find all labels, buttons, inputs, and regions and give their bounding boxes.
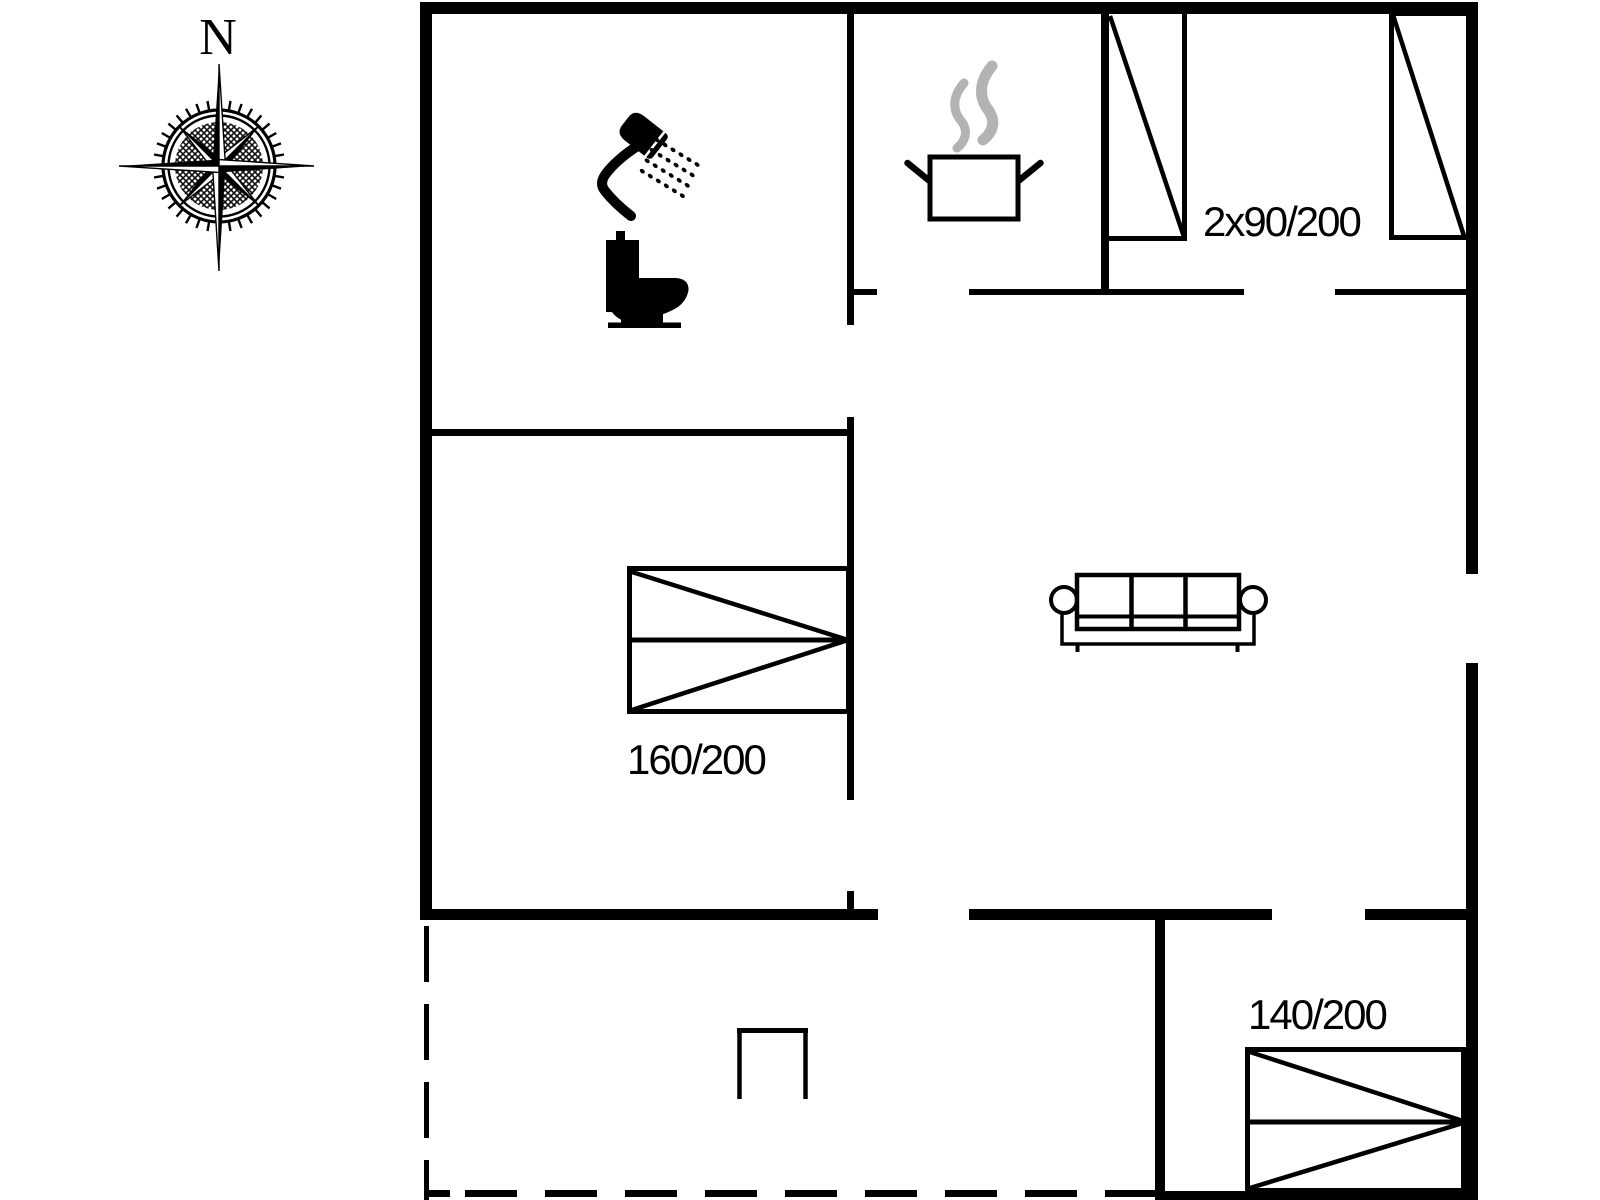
svg-text:2x90/200: 2x90/200 xyxy=(1203,198,1360,245)
svg-text:N: N xyxy=(199,9,237,66)
svg-text:160/200: 160/200 xyxy=(627,736,765,783)
svg-text:140/200: 140/200 xyxy=(1248,991,1386,1038)
